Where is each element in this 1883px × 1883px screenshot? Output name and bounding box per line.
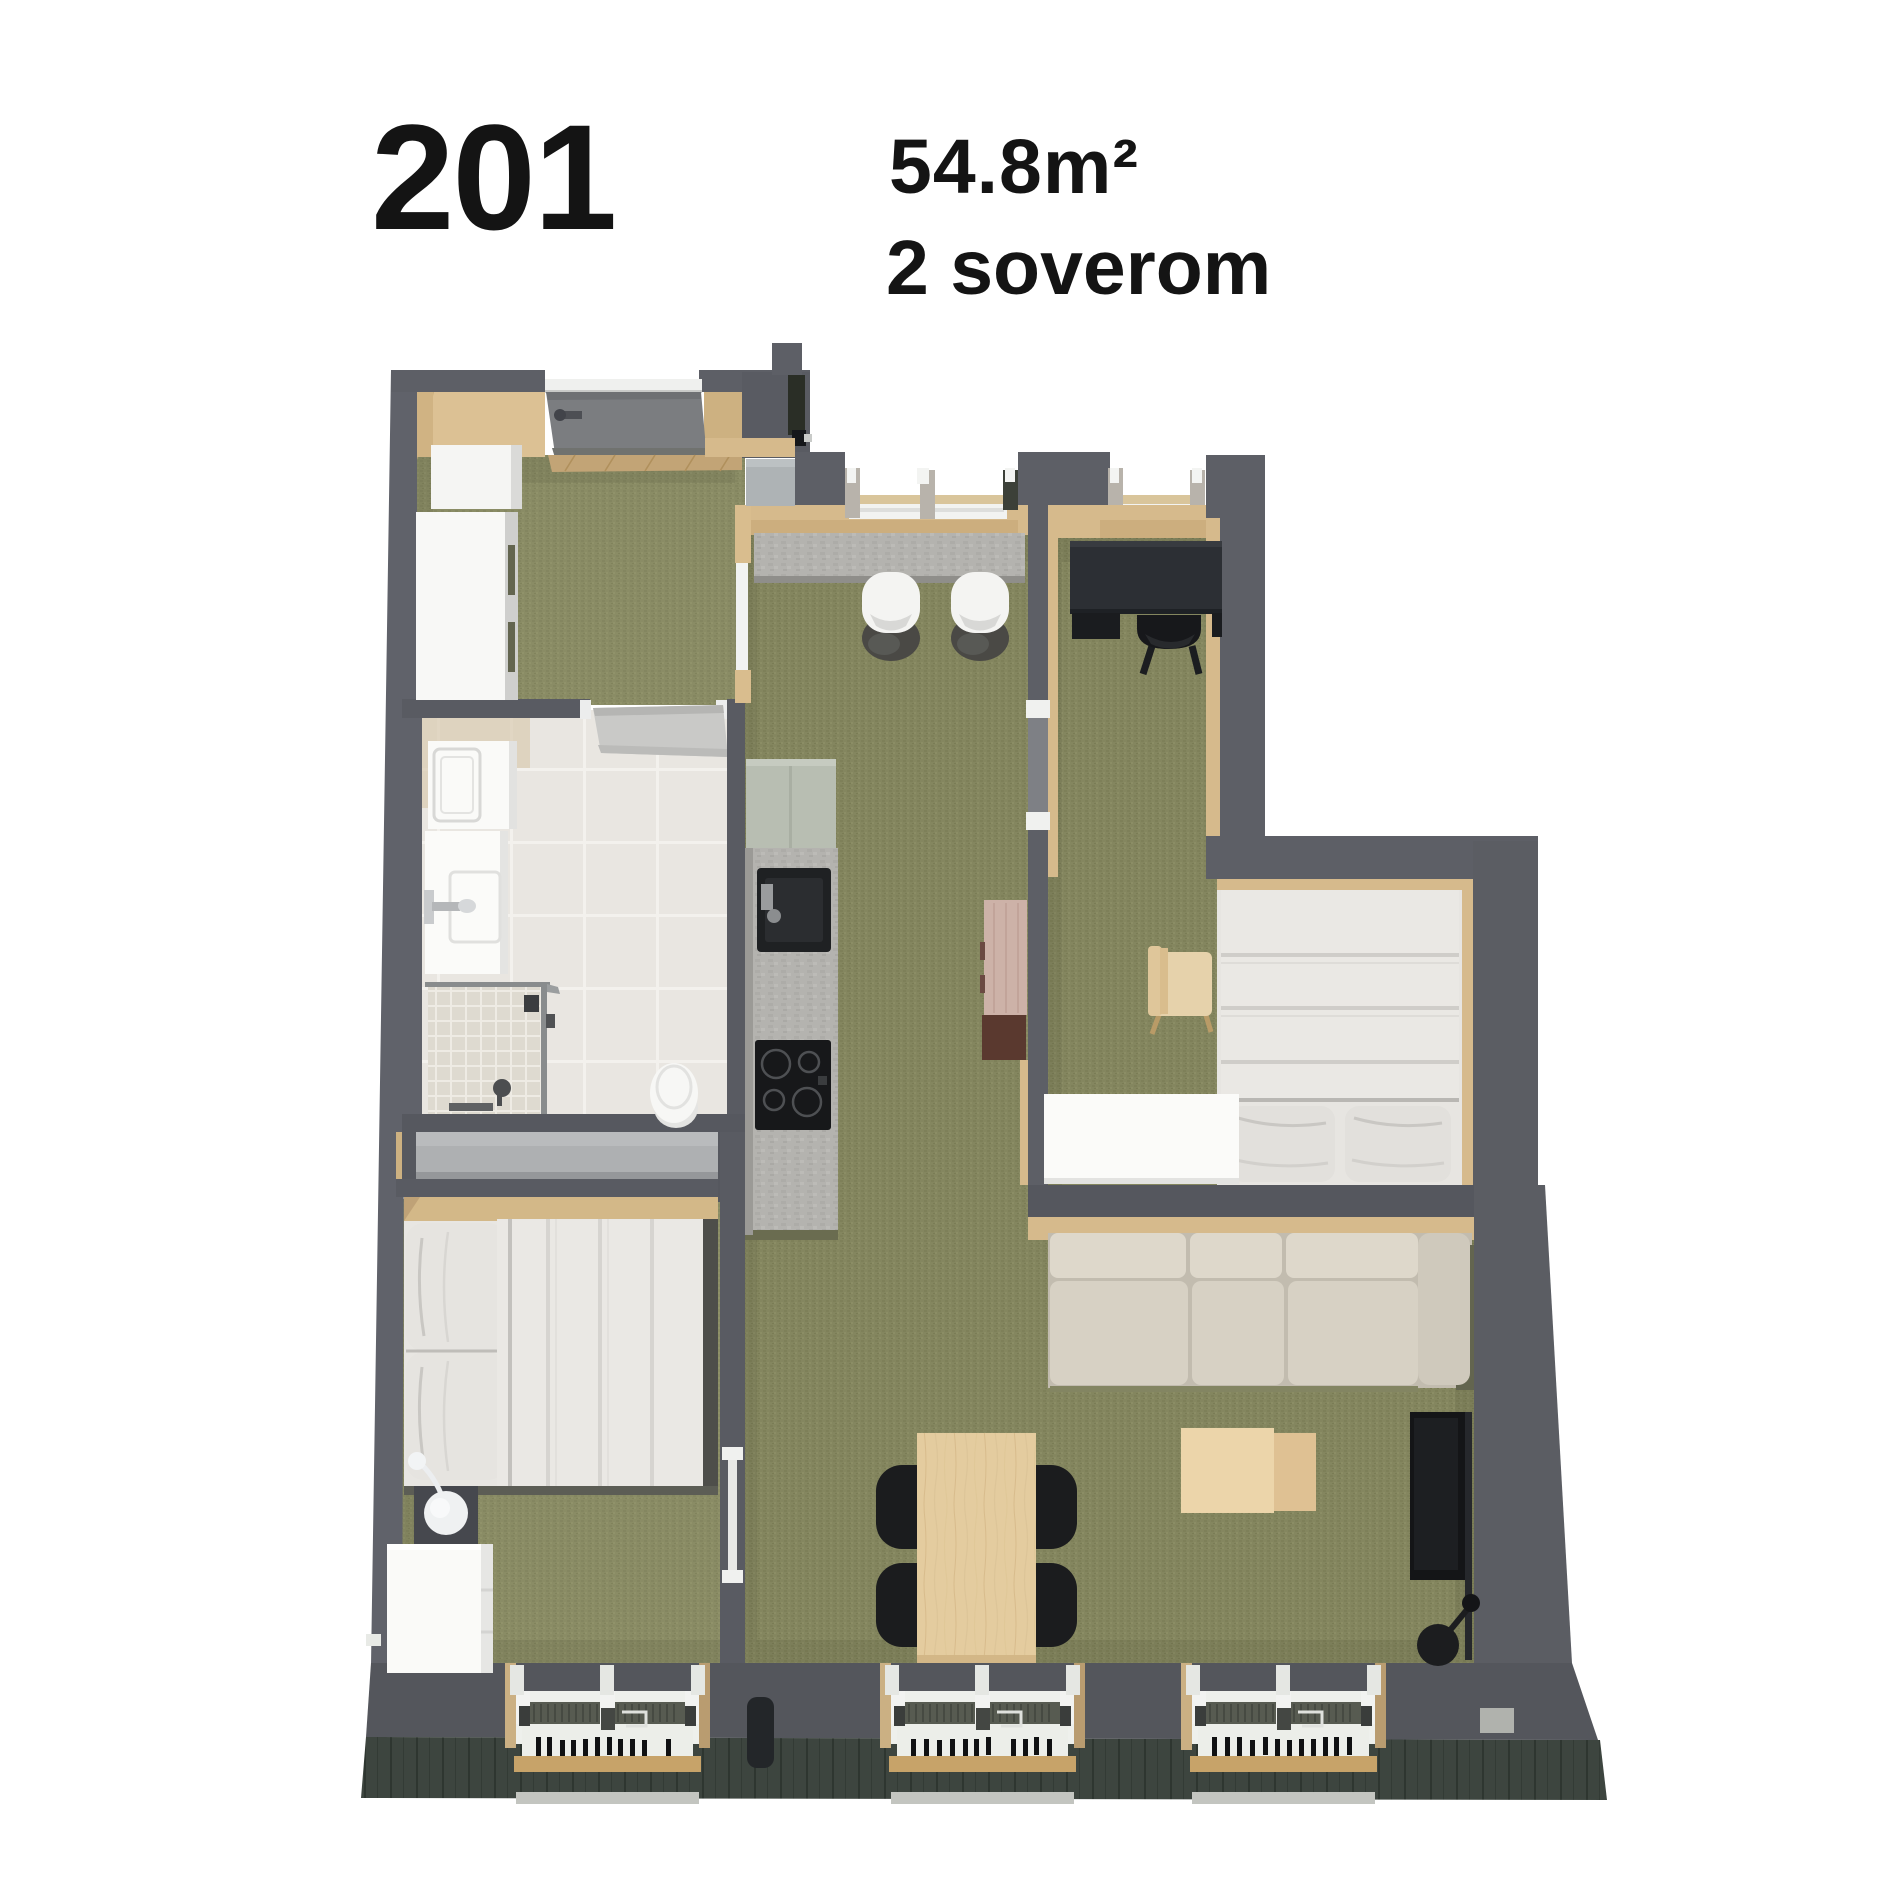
svg-text:54.8m²: 54.8m² bbox=[889, 124, 1139, 210]
svg-text:201: 201 bbox=[371, 93, 615, 261]
svg-text:2 soverom: 2 soverom bbox=[886, 225, 1271, 311]
